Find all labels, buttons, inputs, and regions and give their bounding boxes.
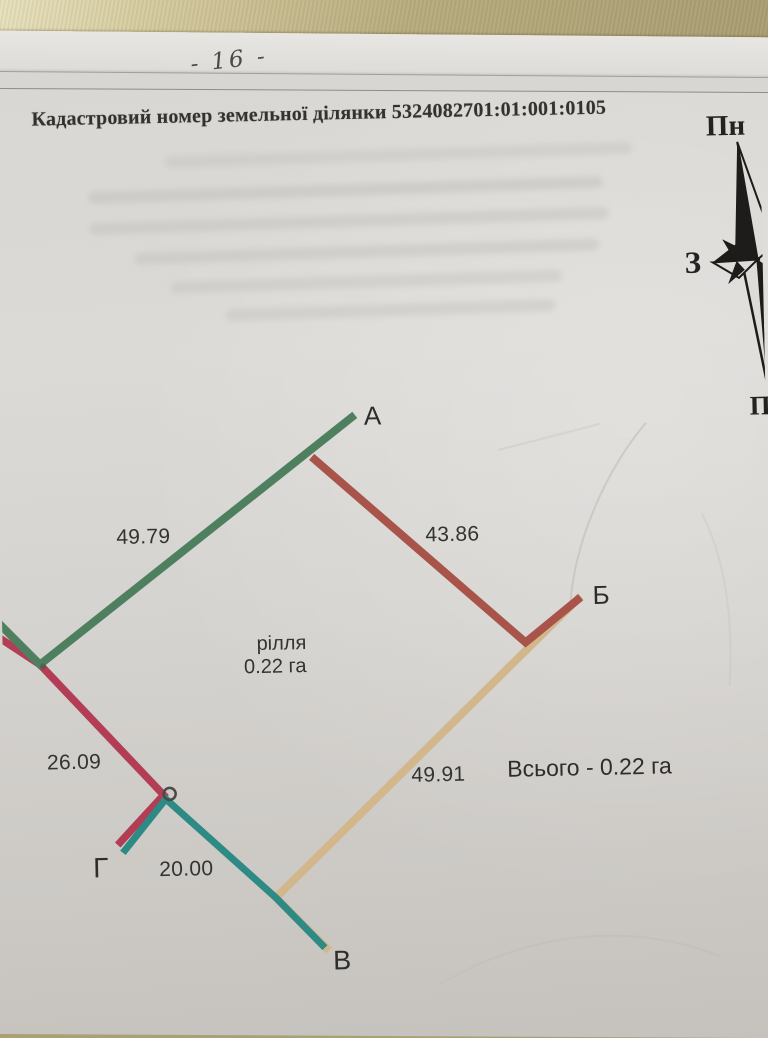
- plan-drawing-layer: [0, 0, 768, 1032]
- parcel-boundary: [0, 410, 588, 957]
- side-g-edge: [0, 631, 165, 847]
- side-length-a-b: 43.86: [425, 522, 480, 547]
- side-length-edge-a: 49.79: [116, 525, 171, 550]
- side-length-v-g: 20.00: [159, 857, 214, 882]
- total-area-label: Всього - 0.22 га: [507, 752, 672, 782]
- document-content: - 16 - Кадастровий номер земельної ділян…: [0, 0, 768, 1032]
- parcel-area-label: 0.22 га: [244, 655, 307, 679]
- vertex-label-b: Б: [592, 580, 610, 611]
- side-a-b: [312, 451, 582, 647]
- land-use-label: рілля: [256, 632, 306, 656]
- compass-rose-icon: [710, 141, 768, 390]
- compass-south-label: Пд: [749, 390, 768, 422]
- vertex-label-v: В: [333, 945, 352, 976]
- photographed-cadastral-document: { "page": { "page_number": "- 16 -", "he…: [0, 0, 768, 1024]
- side-length-b-v: 49.91: [411, 763, 466, 788]
- vertex-label-g: Г: [93, 852, 109, 884]
- compass-north-label: Пн: [705, 110, 745, 144]
- compass-west-label: З: [684, 245, 701, 281]
- side-length-g-edge: 26.09: [47, 750, 102, 775]
- side-edge-a: [0, 415, 360, 666]
- vertex-label-a: А: [363, 400, 381, 431]
